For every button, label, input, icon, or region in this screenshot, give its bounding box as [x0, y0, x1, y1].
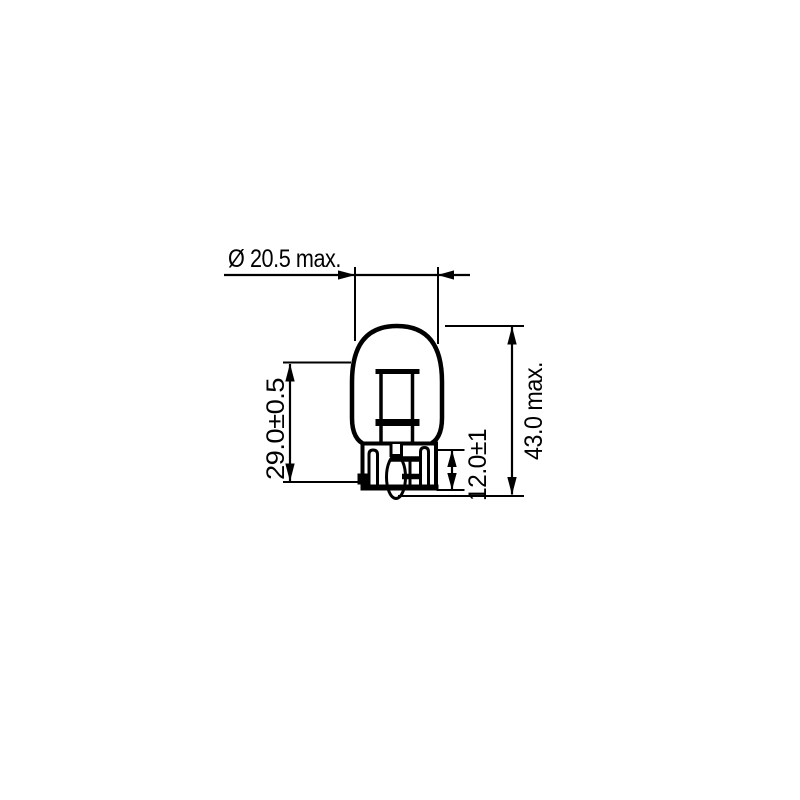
- base-right-wire-pin: [421, 448, 429, 488]
- base-height-arrow-top: [447, 450, 456, 467]
- base-height-arrow-bottom: [447, 473, 456, 490]
- diameter-label: Ø 20.5 max.: [228, 245, 341, 273]
- base-center-notch: [391, 444, 402, 456]
- base-height-label: 12.0±1: [464, 429, 492, 501]
- bulb-figure: [352, 326, 442, 499]
- filament-pinch: [376, 372, 420, 445]
- bulb-technical-drawing: Ø 20.5 max. 29.0±0.5 12.0±1 4: [0, 0, 800, 800]
- overall-height-arrow-top: [507, 327, 516, 345]
- glass-envelope-outline: [352, 326, 442, 445]
- dimension-diameter: Ø 20.5 max.: [224, 245, 470, 344]
- drawing-canvas: Ø 20.5 max. 29.0±0.5 12.0±1 4: [0, 0, 800, 800]
- diameter-arrow-left: [338, 270, 356, 279]
- overall-height-label: 43.0 max.: [520, 362, 548, 460]
- diameter-arrow-right: [438, 270, 455, 279]
- glass-height-arrow-top: [285, 364, 294, 382]
- dimension-base-height: 12.0±1: [437, 429, 493, 501]
- dimension-glass-height: 29.0±0.5: [262, 363, 362, 483]
- wedge-base: [358, 444, 439, 499]
- overall-height-arrow-bottom: [507, 477, 516, 495]
